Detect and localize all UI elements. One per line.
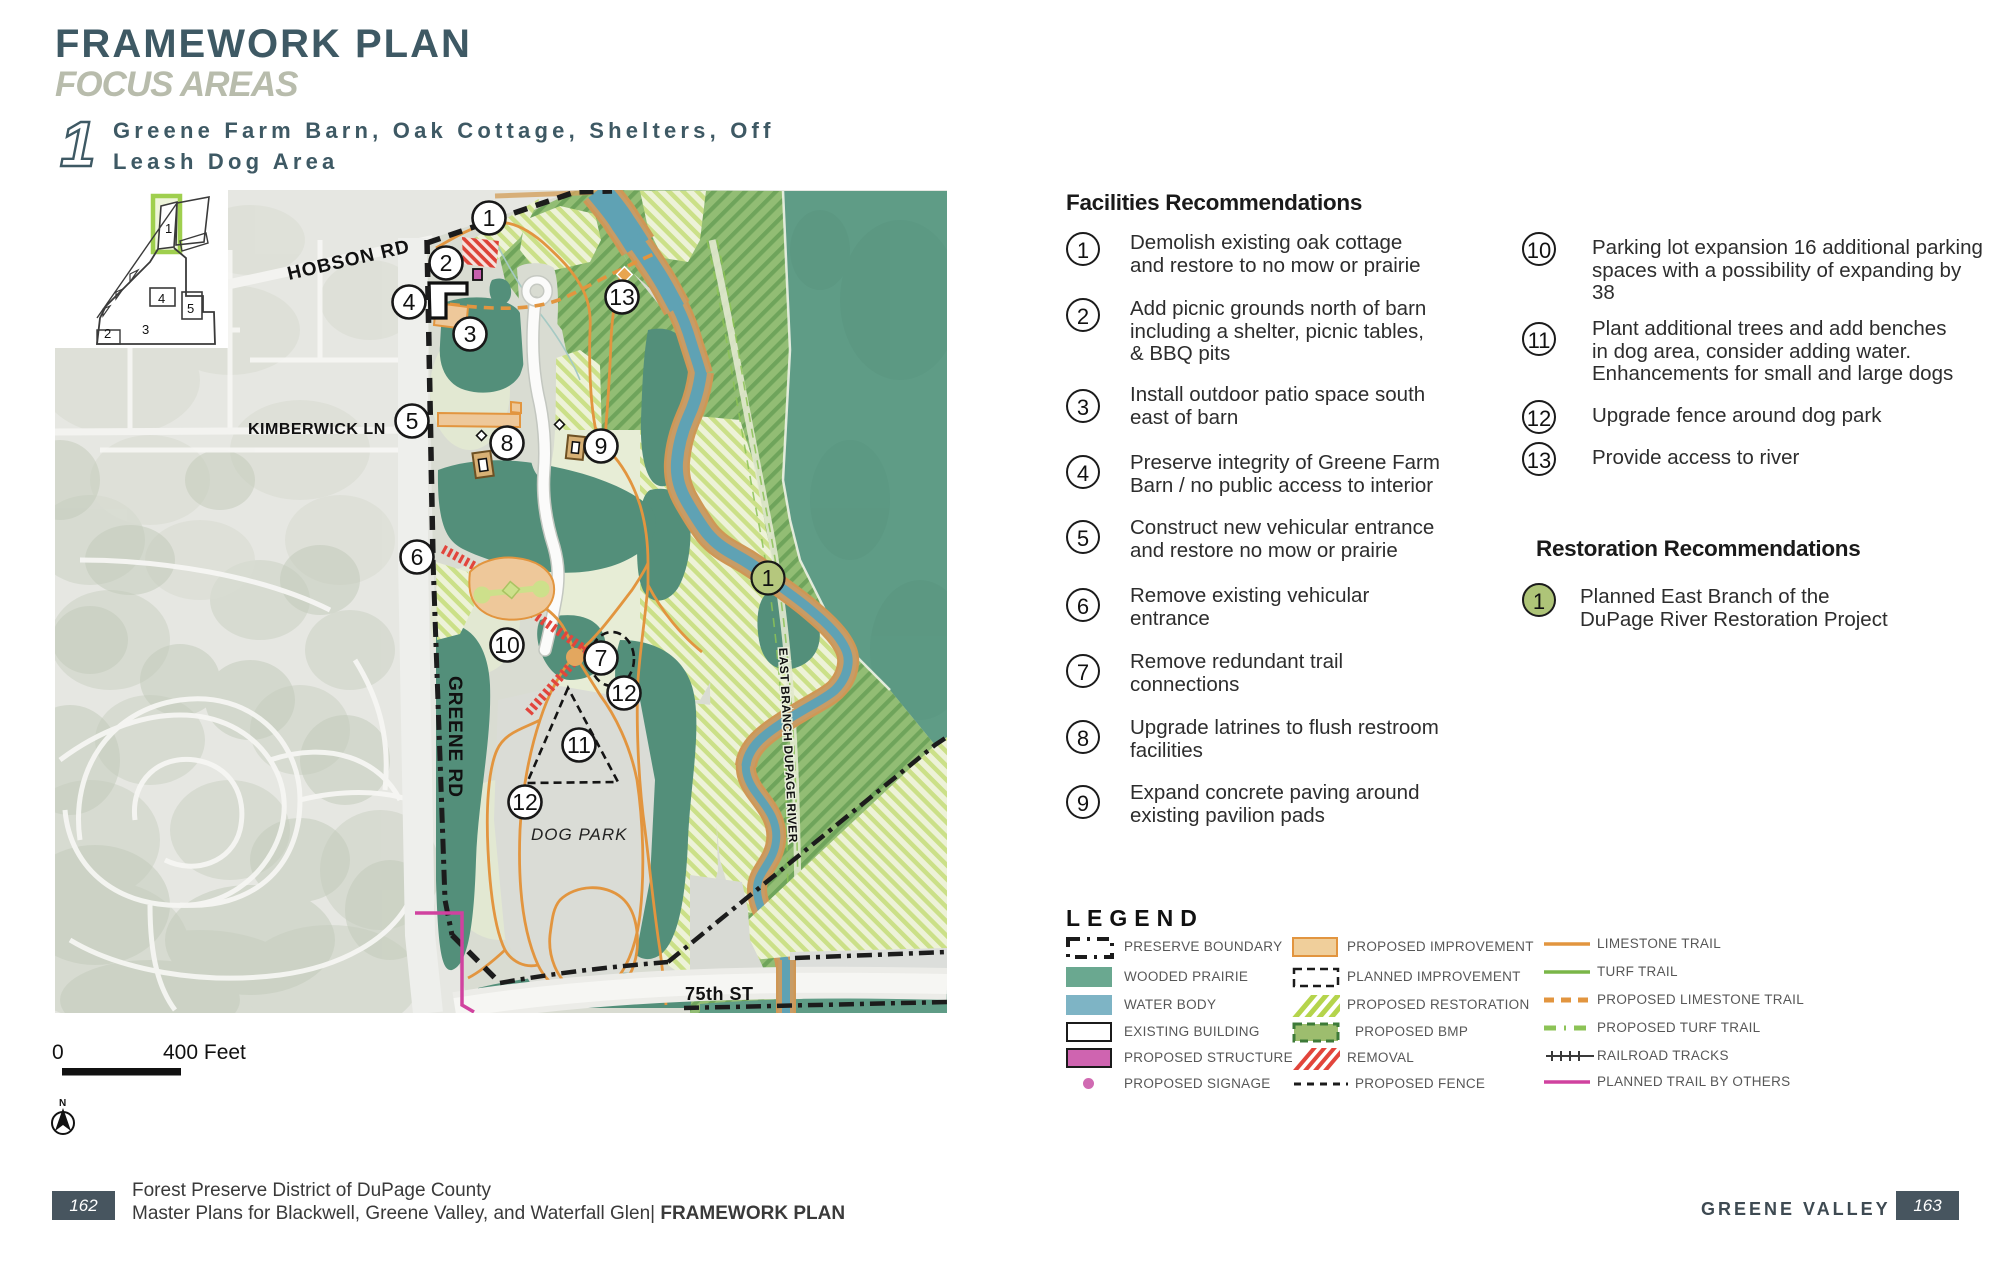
svg-text:1: 1	[483, 205, 496, 231]
svg-text:12: 12	[611, 680, 637, 706]
svg-text:11: 11	[567, 732, 591, 758]
svg-text:0: 0	[52, 1041, 64, 1064]
svg-text:2: 2	[440, 250, 453, 276]
svg-text:2: 2	[104, 326, 111, 341]
svg-text:9: 9	[595, 433, 608, 459]
svg-text:GREENE RD: GREENE RD	[444, 676, 465, 798]
svg-text:3: 3	[142, 322, 149, 337]
svg-text:1: 1	[165, 221, 172, 236]
svg-text:8: 8	[501, 430, 514, 456]
svg-text:10: 10	[494, 632, 520, 658]
svg-text:7: 7	[595, 645, 608, 671]
svg-text:75th ST: 75th ST	[685, 984, 754, 1004]
svg-text:N: N	[59, 1098, 66, 1109]
svg-text:5: 5	[406, 408, 419, 434]
svg-text:1: 1	[762, 565, 775, 591]
svg-text:3: 3	[464, 321, 477, 347]
svg-text:KIMBERWICK LN: KIMBERWICK LN	[248, 421, 386, 438]
svg-text:4: 4	[158, 291, 165, 306]
svg-text:1: 1	[60, 108, 96, 176]
svg-text:400 Feet: 400 Feet	[163, 1041, 246, 1064]
svg-text:13: 13	[609, 284, 635, 310]
svg-text:4: 4	[403, 289, 416, 315]
svg-text:6: 6	[411, 544, 424, 570]
svg-text:DOG PARK: DOG PARK	[531, 825, 627, 844]
svg-text:5: 5	[187, 301, 194, 316]
svg-text:12: 12	[512, 789, 538, 815]
